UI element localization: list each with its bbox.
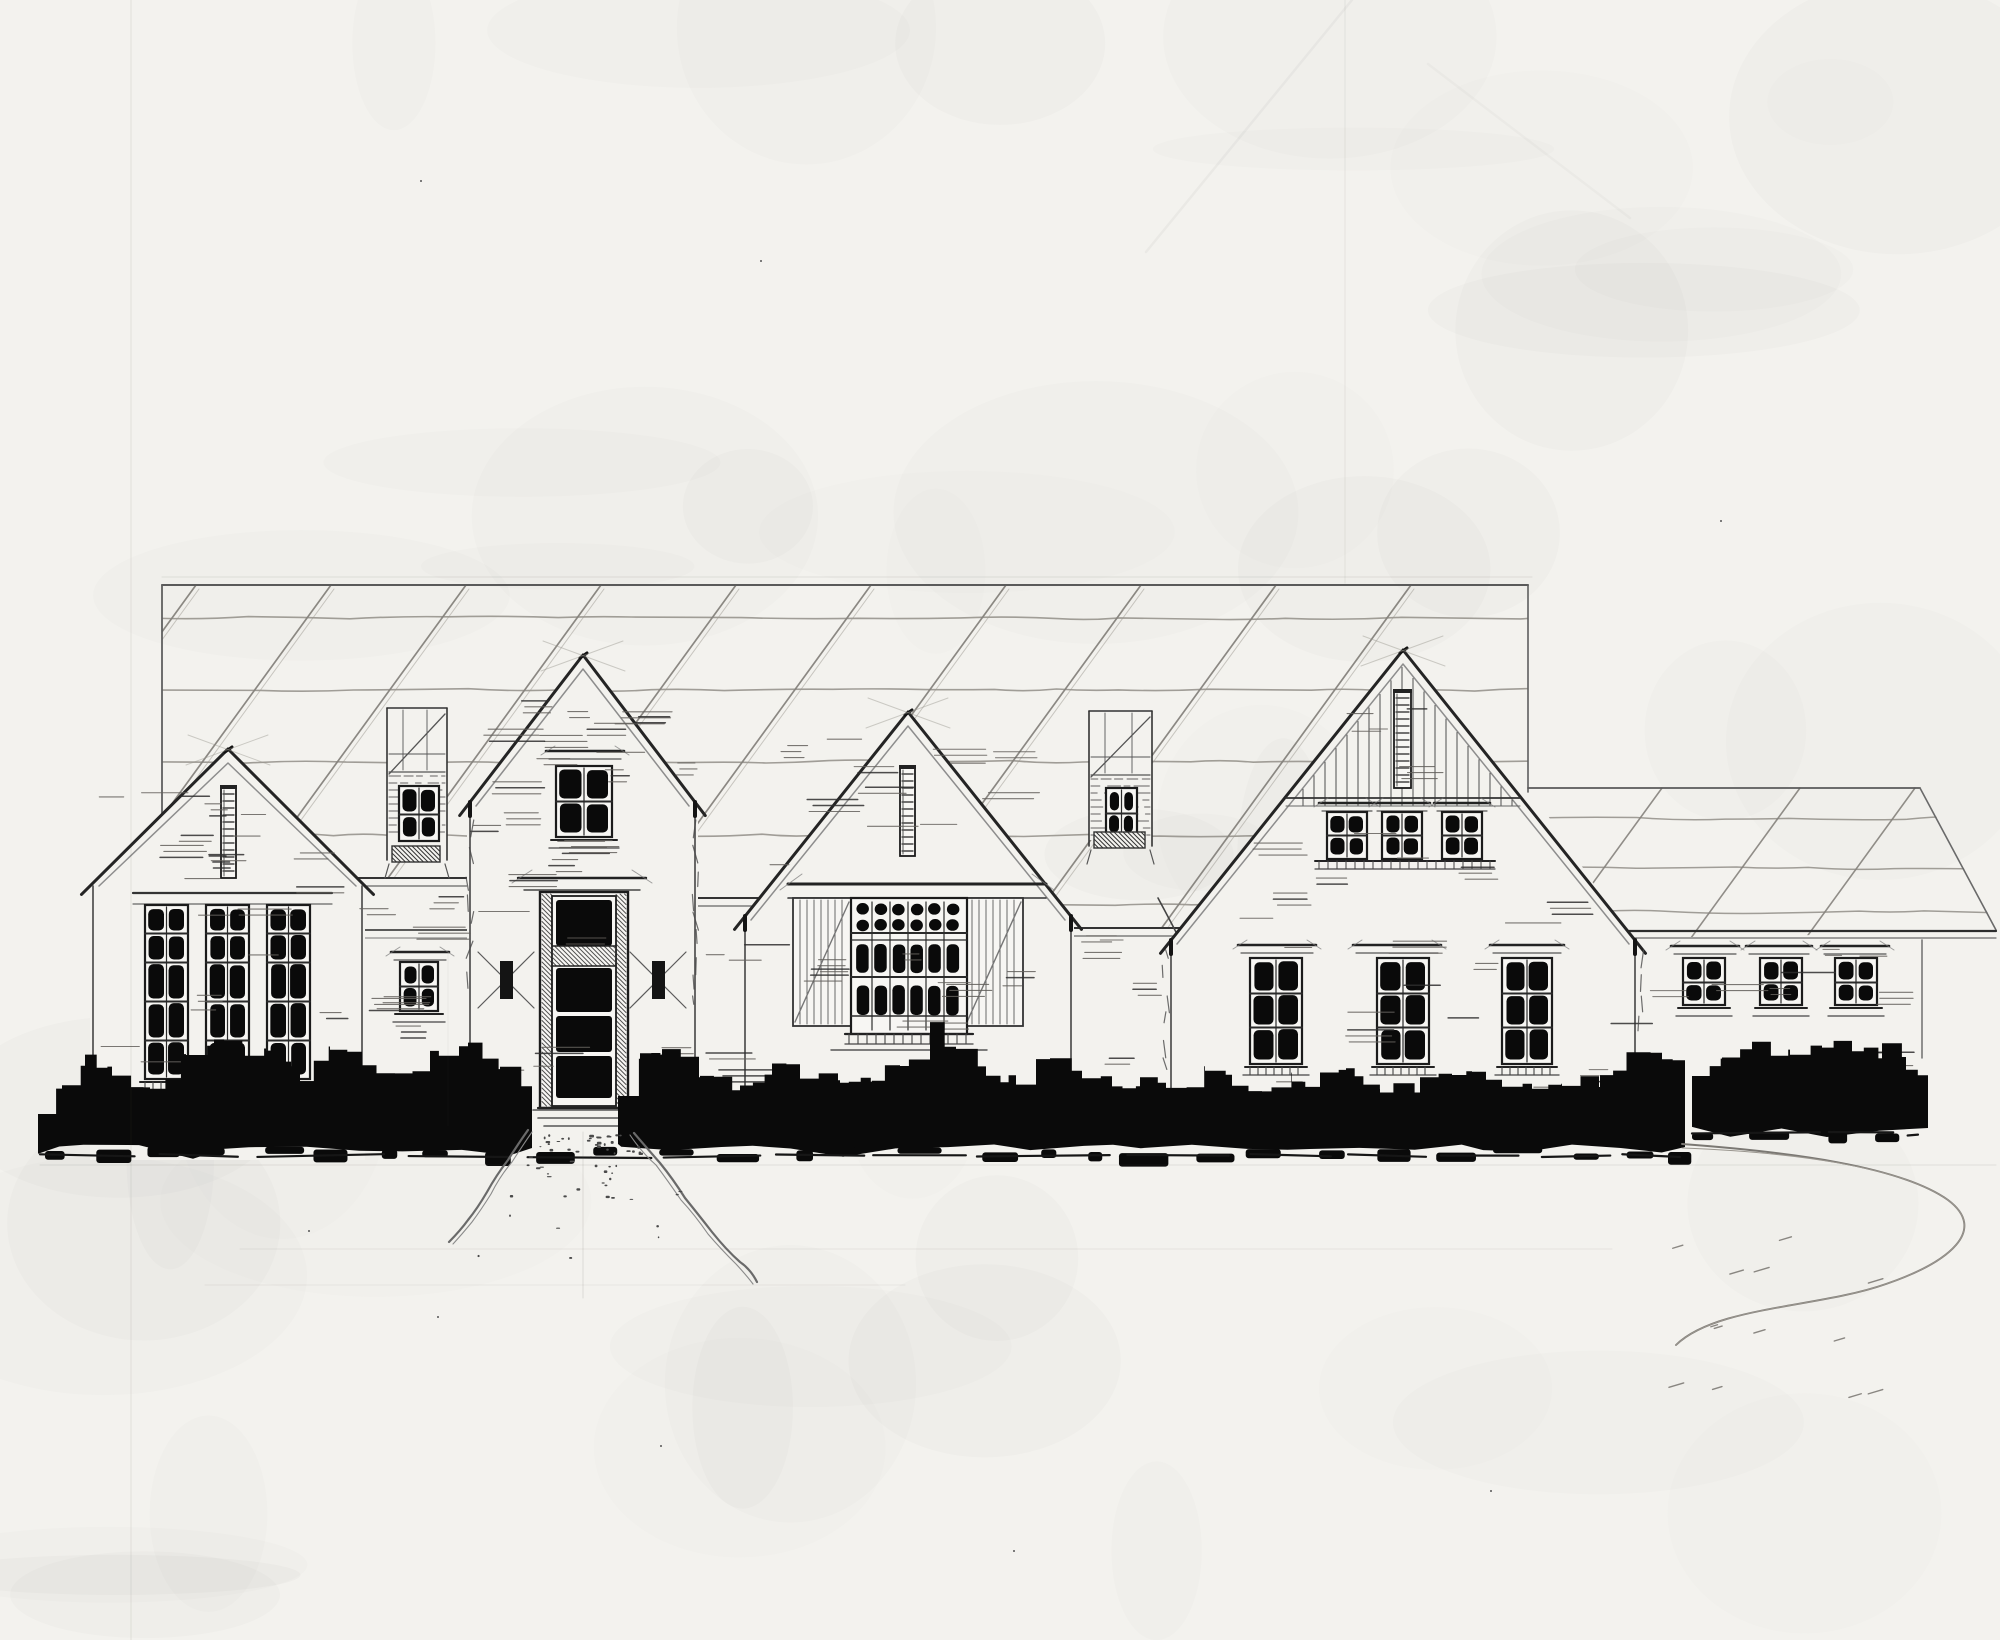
architectural-elevation-sheet — [0, 0, 2000, 1640]
right-dormer — [1087, 711, 1154, 864]
window-shutter-2 — [965, 898, 1023, 1026]
center-grid-window — [780, 874, 1054, 1050]
left-dormer — [385, 708, 449, 878]
left-dormer-window — [399, 786, 439, 841]
window-shutter-1 — [793, 898, 851, 1026]
elevation-drawing — [0, 0, 2000, 1640]
right-dormer-window — [1106, 788, 1137, 837]
